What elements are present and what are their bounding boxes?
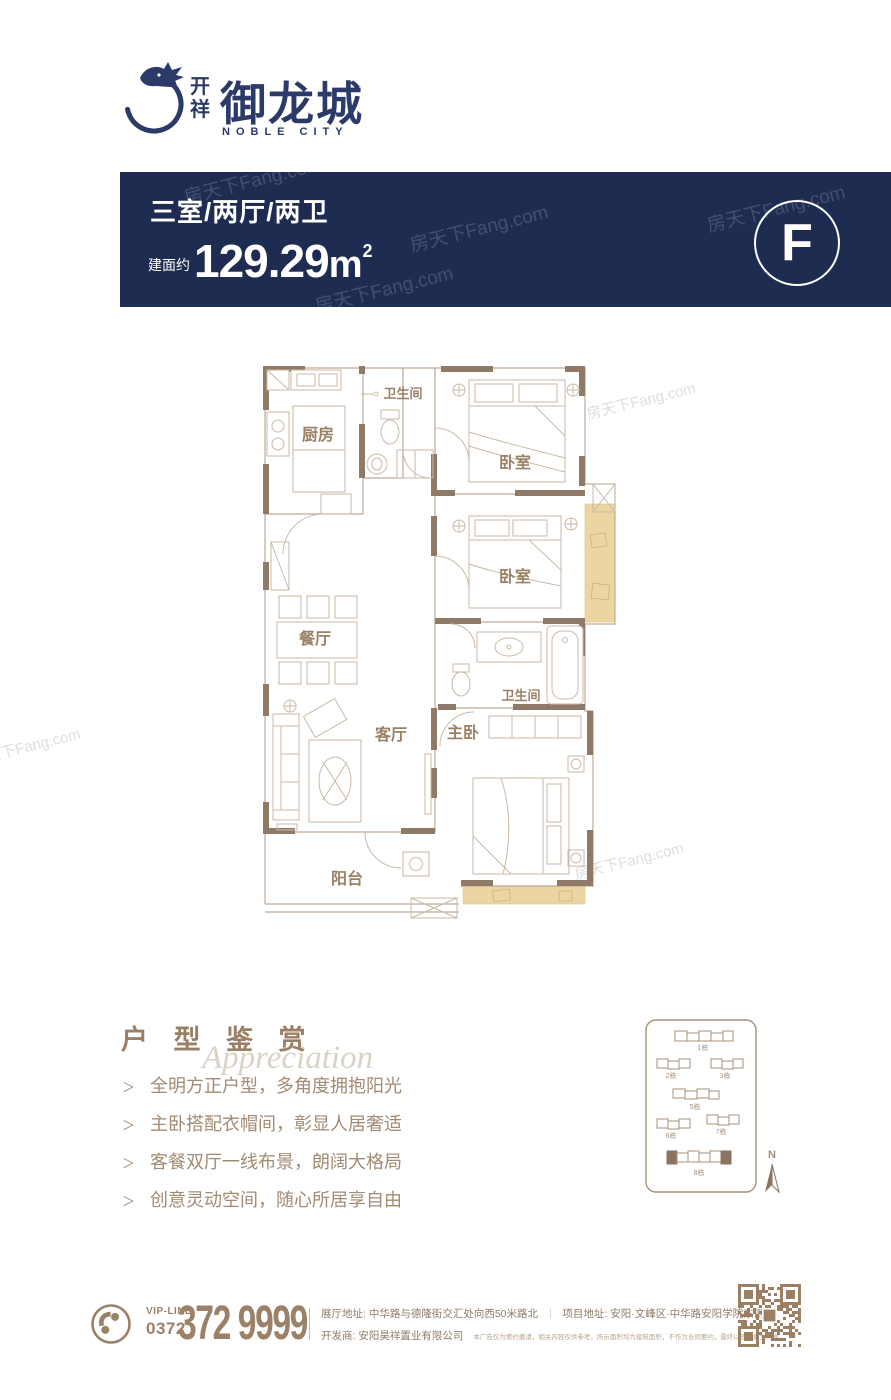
svg-text:3栋: 3栋 [720,1071,731,1080]
svg-text:N: N [768,1149,776,1161]
feature-item: ＞客餐双厅一线布景，朗阔大格局 [122,1148,462,1186]
watermark: 房天下Fang.com [0,723,83,770]
flyer-page: { "brand": { "prefix_top": "开", "prefix_… [0,0,891,1400]
type-banner: 房天下Fang.com 房天下Fang.com 房天下Fang.com 房天下F… [120,172,891,307]
feature-text: 主卧搭配衣帽间，彰显人居奢适 [150,1110,402,1136]
room-label-bath1: 卫生间 [383,386,422,401]
feature-item: ＞全明方正户型，多角度拥抱阳光 [122,1072,462,1110]
qr-center-logo [763,1309,776,1322]
brand-prefix: 开 祥 [189,76,211,122]
dining-furniture [271,542,357,684]
building-6: 6栋 [657,1119,690,1140]
floor-plan: 厨房 卫生间 卧室 卧室 餐厅 卫生间 客厅 主卧 阳台 [263,366,619,928]
area-label: 建面约 [148,255,190,275]
feature-text: 创意灵动空间，随心所居享自由 [150,1186,402,1212]
room-label-balcony: 阳台 [331,869,363,888]
site-map: 1栋 2栋 3栋 5栋 6栋 7栋 8栋 [645,1019,757,1195]
developer-name: 开发商: 安阳昊祥置业有限公司 [321,1331,463,1342]
feature-text: 全明方正户型，多角度拥抱阳光 [150,1072,402,1098]
bullet-marker: ＞ [122,1191,135,1210]
living-furniture [273,699,431,830]
compass-north-icon: N [757,1146,787,1198]
svg-text:7栋: 7栋 [716,1127,727,1136]
hotline-number: 372 9999 [178,1296,307,1351]
brand-prefix-top: 开 [189,76,211,99]
balcony-fixtures [403,852,429,876]
qr-code [738,1284,801,1347]
area-number: 129.29 [194,238,329,284]
svg-text:1栋: 1栋 [698,1043,709,1052]
building-5: 5栋 [673,1089,719,1111]
address-row: 展厅地址: 中华路与德隆街交汇处向西50米路北 ｜ 项目地址: 安阳·文峰区·中… [321,1309,785,1320]
brand-subtitle: NOBLE CITY [222,126,349,138]
brand-name: 御龙城 [220,68,364,134]
appreciation-title: 户 型 鉴 赏 [121,1018,315,1057]
room-label-living: 客厅 [375,725,407,744]
showroom-address: 展厅地址: 中华路与德隆街交汇处向西50米路北 [321,1308,538,1320]
building-7: 7栋 [707,1115,739,1136]
bullet-marker: ＞ [122,1153,135,1172]
unit-type-badge: F [754,200,840,286]
room-label-bedroom1: 卧室 [499,453,531,472]
bullet-marker: ＞ [122,1115,135,1134]
project-address: 项目地址: 安阳·文峰区·中华路安阳学院东侧 [562,1308,764,1320]
room-label-bedroom2: 卧室 [499,567,531,586]
room-label-bath2: 卫生间 [501,688,540,703]
feature-item: ＞主卧搭配衣帽间，彰显人居奢适 [122,1110,462,1148]
developer-row: 开发商: 安阳昊祥置业有限公司 本广告仅为要约邀请，相关内容仅供参考，所示面积均… [321,1331,785,1342]
layout-text: 三室/两厅/两卫 [150,192,328,229]
svg-text:5栋: 5栋 [690,1102,701,1111]
feature-item: ＞创意灵动空间，随心所居享自由 [122,1186,462,1224]
address-separator: ｜ [545,1308,556,1320]
footer-text-block: 展厅地址: 中华路与德隆街交汇处向西50米路北 ｜ 项目地址: 安阳·文峰区·中… [321,1309,785,1341]
building-2: 2栋 [657,1059,690,1080]
phone-icon [90,1303,132,1345]
svg-text:6栋: 6栋 [666,1131,677,1140]
footer-divider [309,1308,310,1340]
room-label-dining: 餐厅 [298,629,331,648]
area-text: 建面约 129.29 m 2 [148,238,373,284]
brand-prefix-bottom: 祥 [189,99,211,122]
feature-text: 客餐双厅一线布景，朗阔大格局 [150,1148,402,1174]
svg-text:2栋: 2栋 [666,1071,677,1080]
dragon-logo-icon [118,56,190,140]
feature-list: ＞全明方正户型，多角度拥抱阳光 ＞主卧搭配衣帽间，彰显人居奢适 ＞客餐双厅一线布… [122,1072,462,1224]
building-1: 1栋 [675,1031,733,1052]
watermark: 房天下Fang.com [407,197,551,257]
svg-text:8栋: 8栋 [694,1168,705,1177]
building-3: 3栋 [711,1059,743,1080]
room-label-master: 主卧 [447,723,479,742]
building-8-highlighted: 8栋 [667,1151,731,1177]
area-superscript: 2 [363,241,373,262]
bullet-marker: ＞ [122,1077,135,1096]
area-unit: m [329,246,363,284]
bedroom2-furniture [453,516,577,608]
room-label-kitchen: 厨房 [302,425,334,444]
master-furniture [473,716,584,874]
bath1-fixtures [361,392,433,478]
